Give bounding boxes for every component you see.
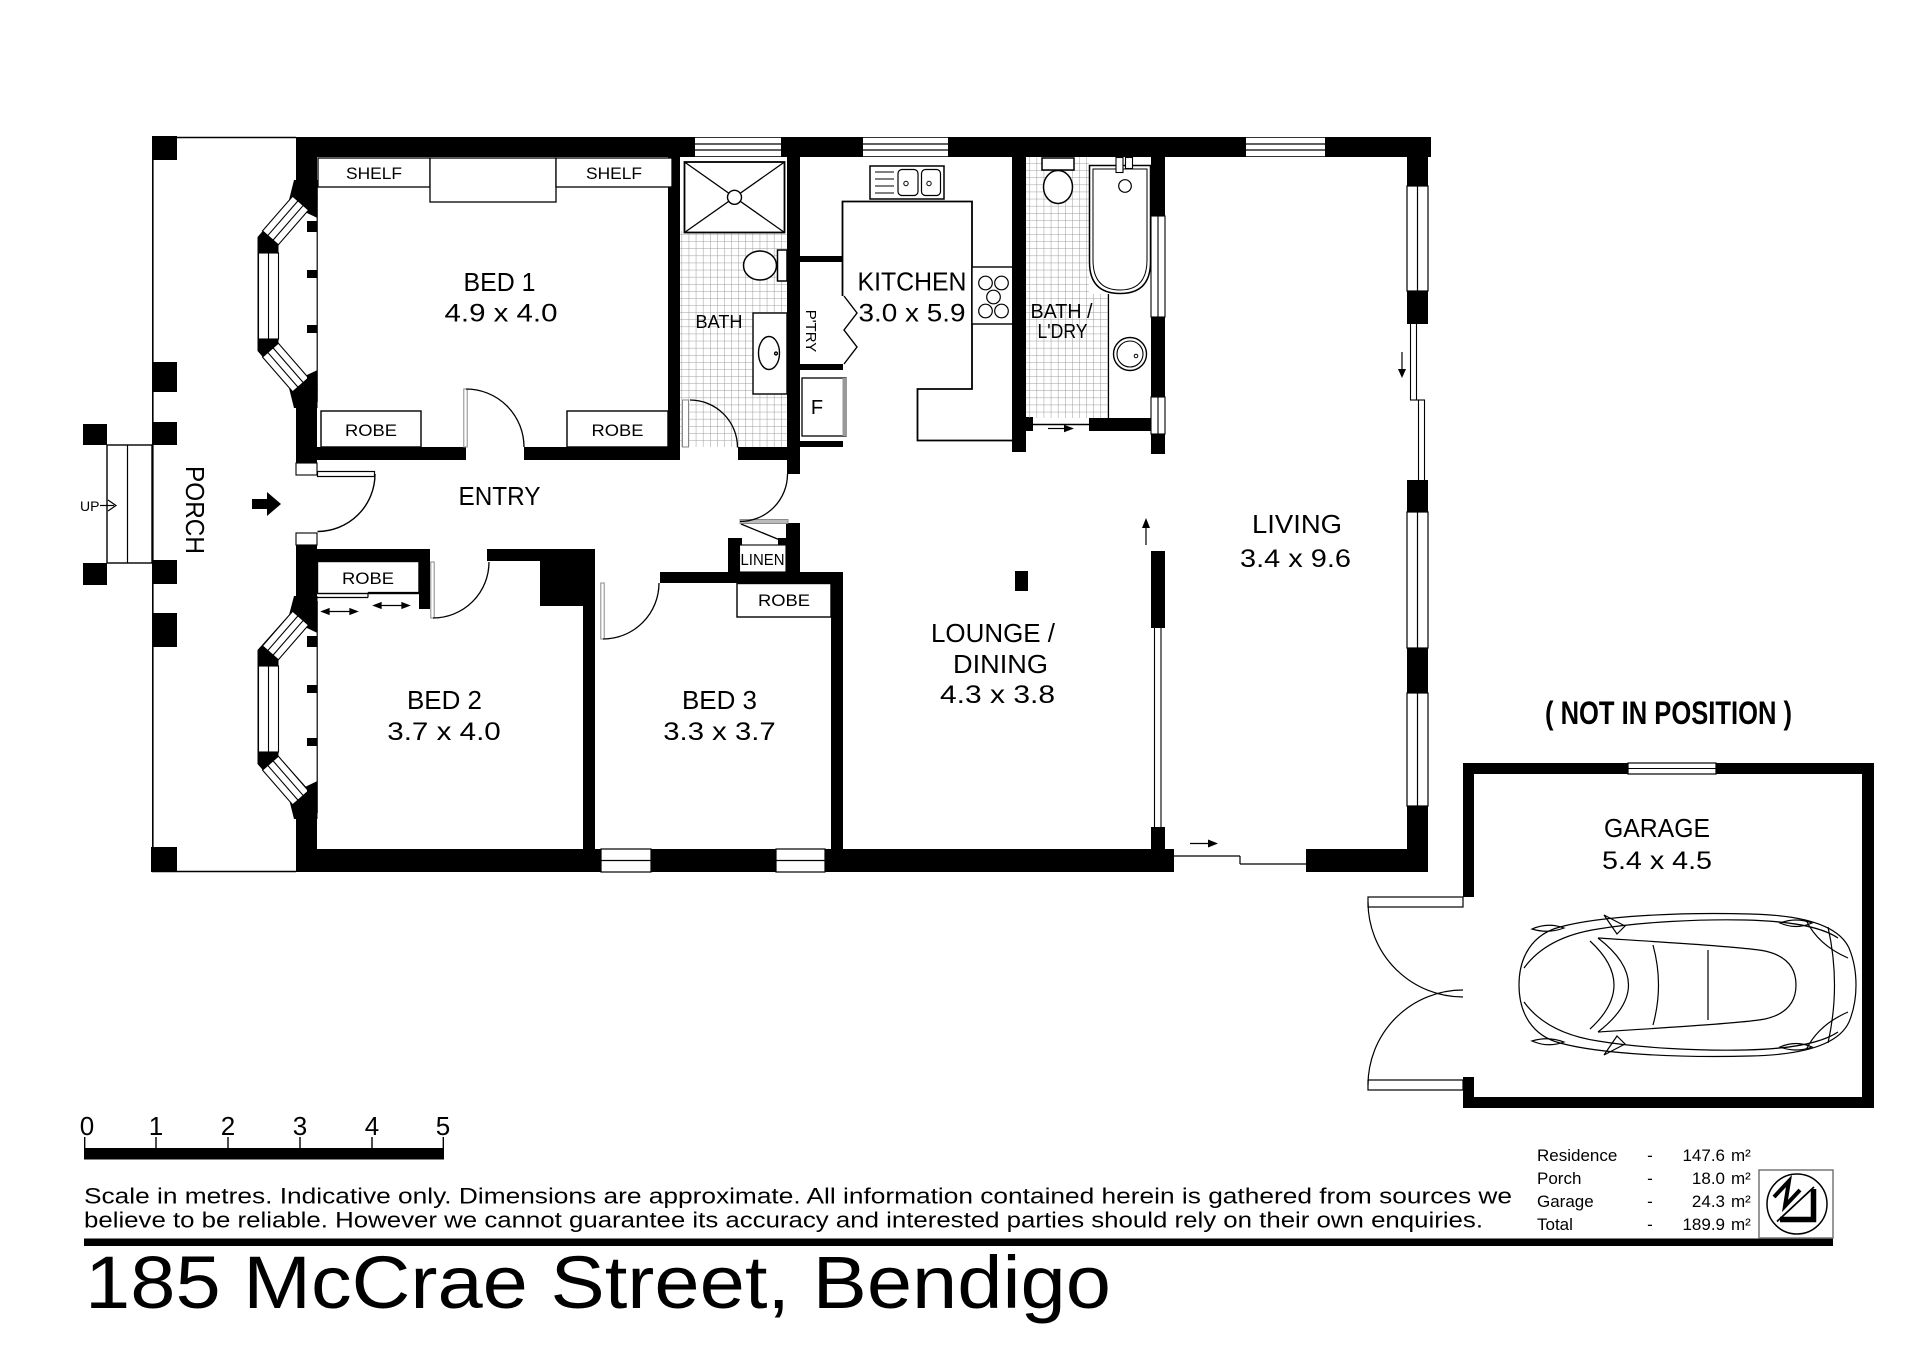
svg-text:ROBE: ROBE xyxy=(592,421,644,440)
svg-text:4.3 x 3.8: 4.3 x 3.8 xyxy=(940,681,1055,709)
svg-text:BED 3: BED 3 xyxy=(682,685,757,715)
svg-text:BED 2: BED 2 xyxy=(407,685,482,715)
svg-text:PORCH: PORCH xyxy=(180,466,210,554)
svg-text:UP: UP xyxy=(80,498,99,514)
svg-text:GARAGE: GARAGE xyxy=(1604,813,1710,843)
svg-text:LOUNGE /: LOUNGE / xyxy=(931,618,1056,648)
svg-text:ROBE: ROBE xyxy=(758,591,810,610)
svg-text:185 McCrae Street, Bendigo: 185 McCrae Street, Bendigo xyxy=(85,1241,1111,1324)
svg-text:-: - xyxy=(1647,1169,1653,1188)
svg-text:24.3: 24.3 xyxy=(1692,1192,1725,1211)
svg-text:Total: Total xyxy=(1537,1215,1573,1234)
svg-text:( NOT IN POSITION ): ( NOT IN POSITION ) xyxy=(1545,695,1792,731)
svg-text:LIVING: LIVING xyxy=(1252,509,1342,539)
svg-text:BATH /: BATH / xyxy=(1031,301,1093,323)
svg-text:Scale in metres. Indicative on: Scale in metres. Indicative only. Dimens… xyxy=(84,1184,1512,1209)
svg-text:LINEN: LINEN xyxy=(741,552,785,569)
svg-text:-: - xyxy=(1647,1146,1653,1165)
svg-text:3.4 x 9.6: 3.4 x 9.6 xyxy=(1240,545,1351,573)
svg-text:-: - xyxy=(1647,1192,1653,1211)
svg-text:P'TRY: P'TRY xyxy=(802,310,819,353)
svg-text:18.0: 18.0 xyxy=(1692,1169,1725,1188)
svg-text:SHELF: SHELF xyxy=(586,164,642,183)
svg-text:4: 4 xyxy=(365,1111,379,1141)
svg-text:Porch: Porch xyxy=(1537,1169,1581,1188)
svg-text:147.6: 147.6 xyxy=(1682,1146,1725,1165)
svg-text:ROBE: ROBE xyxy=(342,569,394,588)
svg-text:L'DRY: L'DRY xyxy=(1038,321,1088,343)
svg-text:3.0 x 5.9: 3.0 x 5.9 xyxy=(859,300,966,328)
svg-text:3.7 x 4.0: 3.7 x 4.0 xyxy=(387,718,501,746)
svg-text:m²: m² xyxy=(1731,1192,1751,1211)
svg-text:3.3 x 3.7: 3.3 x 3.7 xyxy=(663,718,776,746)
svg-text:m²: m² xyxy=(1731,1146,1751,1165)
svg-text:KITCHEN: KITCHEN xyxy=(858,267,967,297)
svg-text:Garage: Garage xyxy=(1537,1192,1594,1211)
svg-text:189.9: 189.9 xyxy=(1682,1215,1725,1234)
svg-text:5: 5 xyxy=(436,1111,450,1141)
svg-text:m²: m² xyxy=(1731,1215,1751,1234)
svg-text:BED 1: BED 1 xyxy=(464,267,536,297)
svg-text:SHELF: SHELF xyxy=(346,164,402,183)
svg-text:DINING: DINING xyxy=(953,649,1048,679)
svg-text:ENTRY: ENTRY xyxy=(459,481,541,511)
svg-text:believe to be reliable. Howeve: believe to be reliable. However we canno… xyxy=(84,1208,1483,1233)
svg-text:1: 1 xyxy=(149,1111,163,1141)
svg-text:4.9 x 4.0: 4.9 x 4.0 xyxy=(445,300,558,328)
svg-text:0: 0 xyxy=(80,1111,94,1141)
svg-text:5.4 x 4.5: 5.4 x 4.5 xyxy=(1602,847,1712,875)
svg-text:F: F xyxy=(811,397,823,419)
svg-text:ROBE: ROBE xyxy=(345,421,397,440)
svg-text:-: - xyxy=(1647,1215,1653,1234)
svg-text:2: 2 xyxy=(221,1111,235,1141)
svg-text:BATH: BATH xyxy=(696,312,743,332)
svg-text:3: 3 xyxy=(293,1111,307,1141)
svg-text:m²: m² xyxy=(1731,1169,1751,1188)
svg-text:Residence: Residence xyxy=(1537,1146,1617,1165)
